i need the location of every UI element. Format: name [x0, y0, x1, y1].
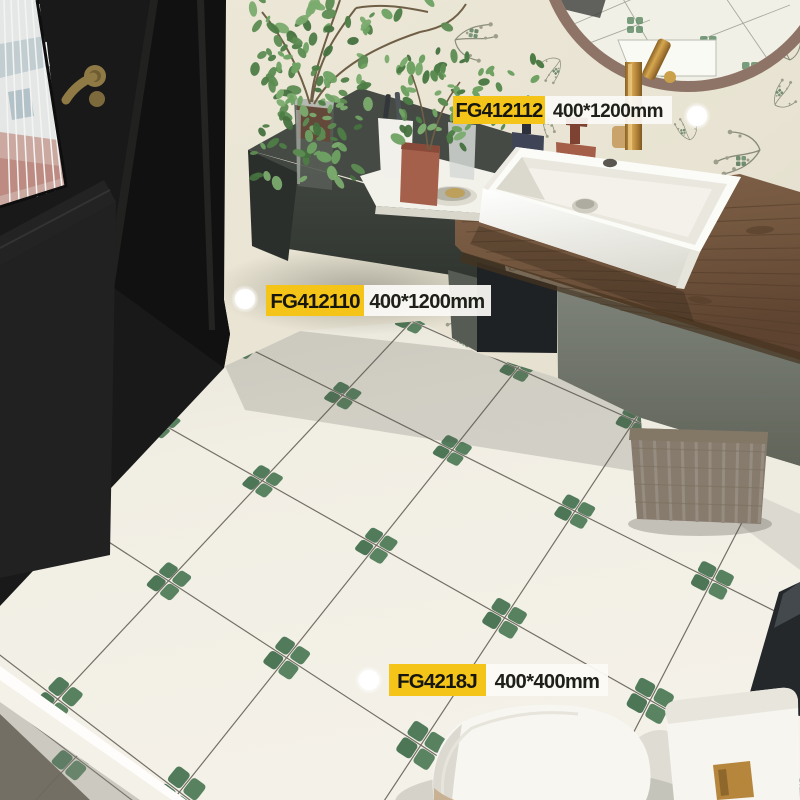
svg-text:FG412110: FG412110 [270, 290, 360, 313]
svg-text:400*1200mm: 400*1200mm [369, 291, 484, 313]
svg-text:400*1200mm: 400*1200mm [553, 101, 663, 122]
svg-text:400*400mm: 400*400mm [495, 671, 600, 693]
svg-text:FG4218J: FG4218J [397, 670, 477, 693]
svg-text:FG412112: FG412112 [455, 100, 543, 122]
